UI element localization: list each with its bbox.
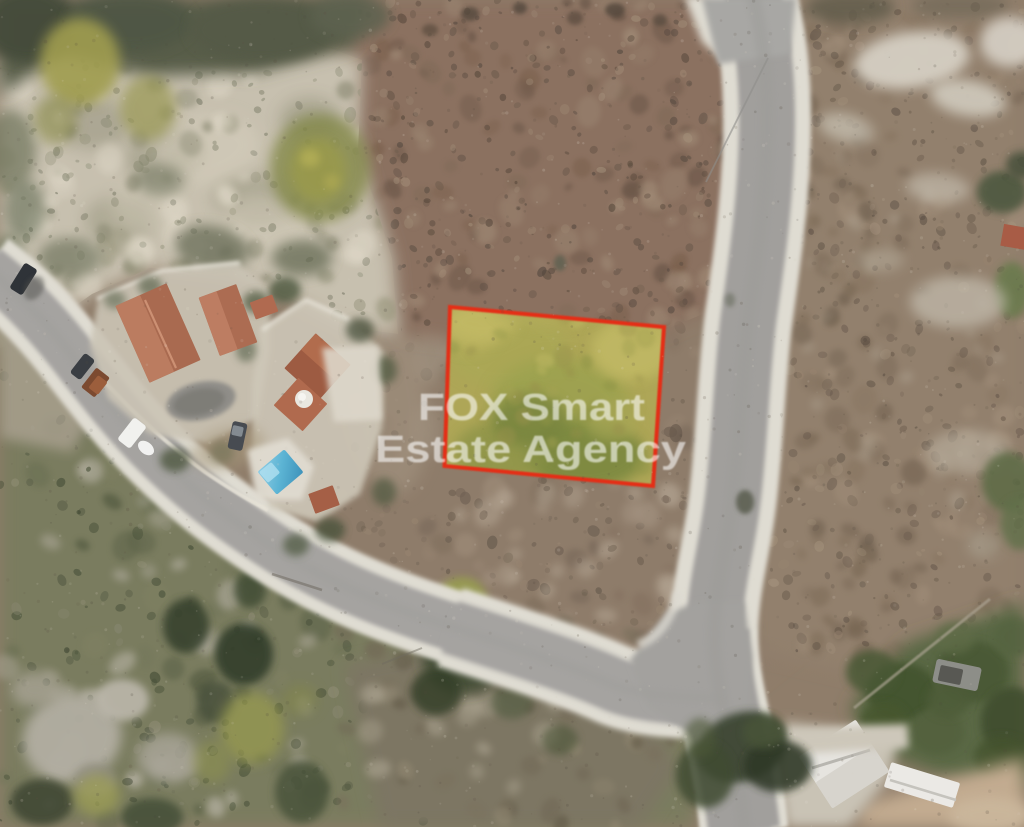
svg-text:FOX Smart: FOX Smart [418,387,645,429]
svg-text:Estate Agency: Estate Agency [375,429,686,471]
